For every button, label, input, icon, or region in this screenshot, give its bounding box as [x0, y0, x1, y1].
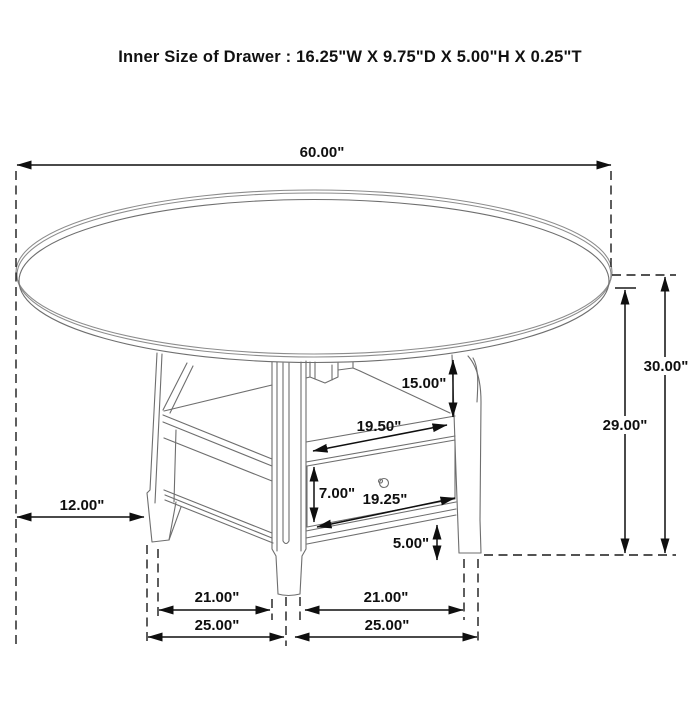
- left-leg: [147, 353, 181, 542]
- dim-label-bottom-rail: 5.00": [393, 535, 429, 552]
- dim-label-drawer-width: 19.25": [363, 491, 408, 508]
- dim-label-drawer-face: 7.00": [319, 485, 355, 502]
- dim-label-shelf-opening: 15.00": [402, 375, 447, 392]
- dim-label-shelf-width: 19.50": [357, 418, 402, 435]
- dim-label-table-height: 30.00": [644, 358, 689, 375]
- front-leg: [272, 361, 306, 596]
- tabletop: [16, 190, 612, 363]
- dim-label-base-spread-left: 25.00": [195, 617, 240, 634]
- dim-label-base-spread-right: 25.00": [365, 617, 410, 634]
- dim-label-top-overhang: 12.00": [60, 497, 105, 514]
- dim-label-table-diameter: 60.00": [300, 144, 345, 161]
- drawer-inner-size-title: Inner Size of Drawer : 16.25"W X 9.75"D …: [0, 48, 700, 67]
- left-face-shelf: [163, 415, 273, 543]
- dimension-lines: [17, 165, 665, 637]
- table-dimension-diagram: 60.00" 30.00" 29.00" 15.00" 19.50" 7.00"…: [0, 0, 700, 700]
- dim-label-underside-height: 29.00": [603, 417, 648, 434]
- right-leg: [452, 355, 481, 553]
- dim-label-leg-spread-left: 21.00": [195, 589, 240, 606]
- extension-lines: [16, 171, 676, 646]
- dim-label-leg-spread-right: 21.00": [364, 589, 409, 606]
